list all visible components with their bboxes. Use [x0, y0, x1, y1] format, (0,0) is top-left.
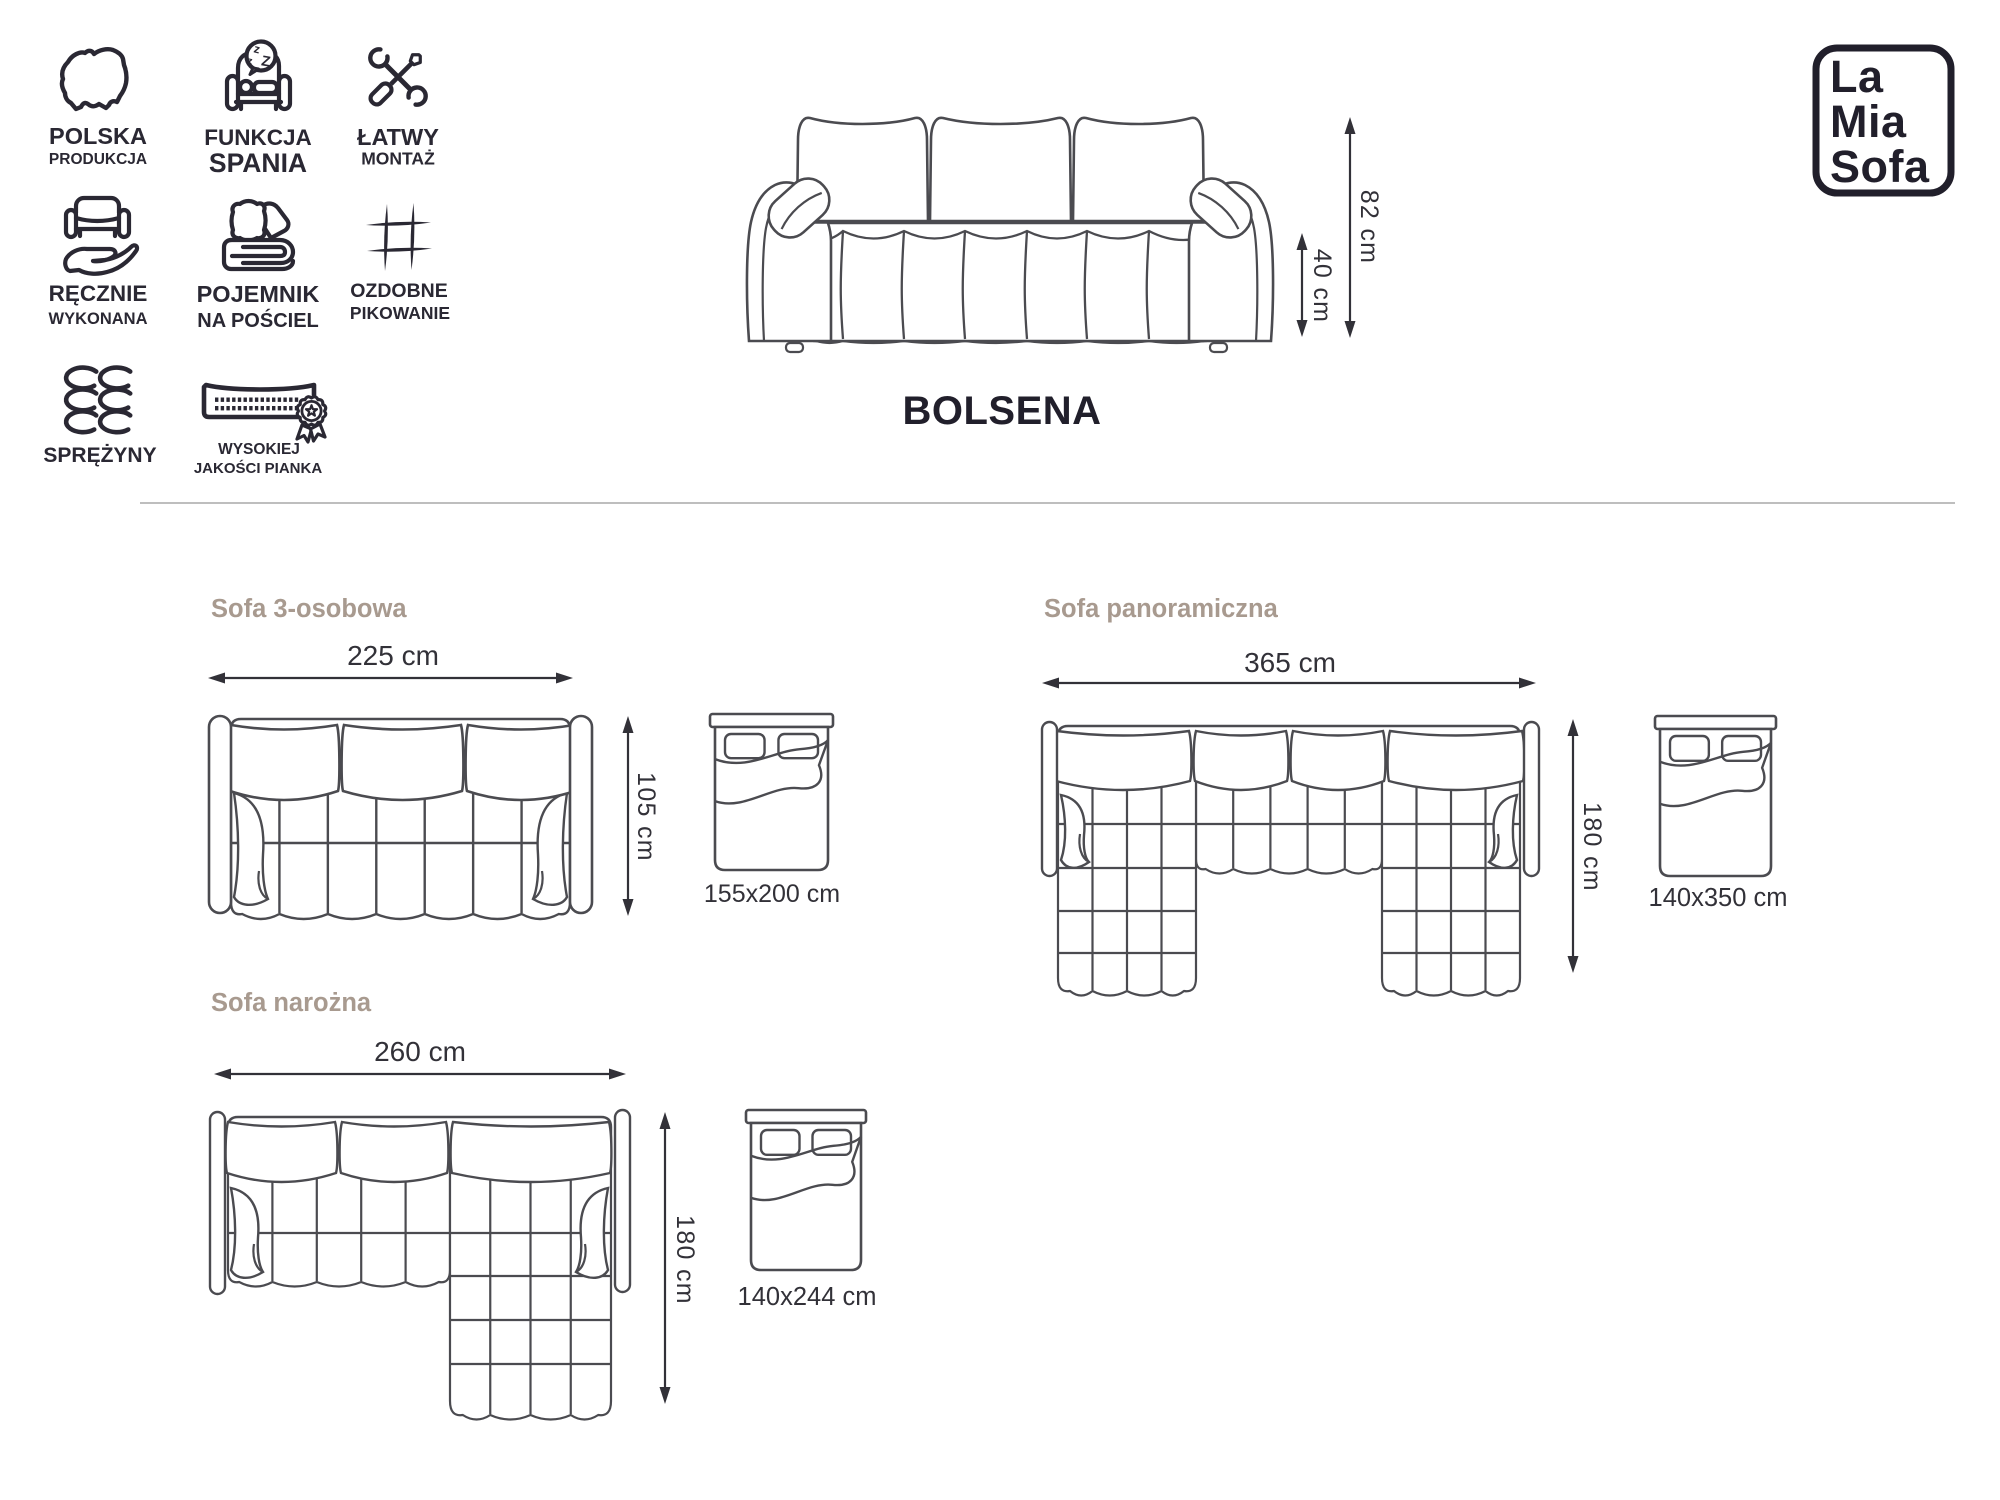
svg-text:PRODUKCJA: PRODUKCJA — [49, 151, 147, 168]
svg-text:POLSKA: POLSKA — [49, 123, 147, 149]
svg-text:140x350 cm: 140x350 cm — [1649, 884, 1788, 912]
svg-text:82 cm: 82 cm — [1355, 190, 1383, 265]
svg-text:260 cm: 260 cm — [374, 1036, 466, 1067]
svg-text:JAKOŚCI PIANKA: JAKOŚCI PIANKA — [194, 459, 323, 477]
svg-text:La: La — [1830, 51, 1884, 102]
svg-text:40 cm: 40 cm — [1308, 249, 1336, 324]
svg-text:Sofa: Sofa — [1830, 141, 1930, 192]
svg-text:180 cm: 180 cm — [671, 1215, 699, 1305]
svg-text:ŁATWY: ŁATWY — [357, 124, 439, 150]
svg-text:MONTAŻ: MONTAŻ — [361, 149, 435, 169]
svg-text:155x200 cm: 155x200 cm — [704, 880, 840, 908]
svg-text:225 cm: 225 cm — [347, 640, 439, 671]
svg-text:Sofa 3-osobowa: Sofa 3-osobowa — [211, 595, 407, 623]
svg-text:WYKONANA: WYKONANA — [49, 310, 148, 328]
svg-text:Sofa panoramiczna: Sofa panoramiczna — [1044, 595, 1279, 623]
svg-text:RĘCZNIE: RĘCZNIE — [49, 281, 148, 306]
svg-text:140x244 cm: 140x244 cm — [738, 1283, 877, 1311]
svg-text:SPRĘŻYNY: SPRĘŻYNY — [43, 444, 156, 467]
svg-text:NA POŚCIEL: NA POŚCIEL — [197, 308, 319, 332]
svg-text:Sofa narożna: Sofa narożna — [211, 989, 372, 1017]
svg-text:SPANIA: SPANIA — [209, 148, 307, 178]
svg-text:OZDOBNE: OZDOBNE — [350, 280, 448, 302]
svg-text:Mia: Mia — [1830, 96, 1907, 147]
svg-text:180 cm: 180 cm — [1578, 802, 1606, 892]
svg-text:WYSOKIEJ: WYSOKIEJ — [218, 441, 300, 458]
svg-text:FUNKCJA: FUNKCJA — [204, 125, 312, 150]
svg-text:POJEMNIK: POJEMNIK — [197, 281, 320, 307]
svg-text:105 cm: 105 cm — [632, 772, 660, 862]
svg-text:BOLSENA: BOLSENA — [902, 389, 1101, 433]
svg-text:365 cm: 365 cm — [1244, 647, 1336, 678]
svg-text:PIKOWANIE: PIKOWANIE — [350, 303, 450, 323]
